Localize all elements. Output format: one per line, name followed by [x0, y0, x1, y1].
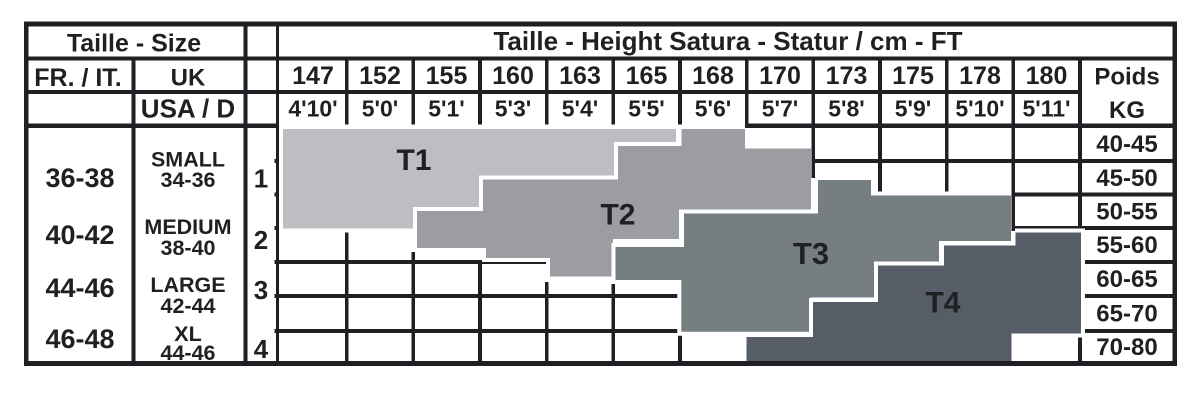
svg-text:5'4': 5'4' — [562, 96, 599, 122]
svg-text:UK: UK — [171, 65, 206, 92]
svg-text:42-44: 42-44 — [161, 294, 216, 318]
svg-text:5'1': 5'1' — [428, 96, 465, 122]
svg-text:T4: T4 — [925, 287, 960, 320]
svg-text:4: 4 — [254, 334, 269, 364]
svg-text:168: 168 — [692, 62, 734, 90]
svg-text:175: 175 — [892, 62, 934, 90]
svg-text:5'3': 5'3' — [495, 96, 532, 122]
svg-text:170: 170 — [759, 62, 801, 90]
svg-text:1: 1 — [254, 164, 268, 194]
svg-text:40-42: 40-42 — [45, 220, 114, 250]
svg-text:163: 163 — [559, 62, 601, 90]
svg-text:5'0': 5'0' — [362, 96, 399, 122]
svg-text:38-40: 38-40 — [161, 236, 216, 260]
svg-text:165: 165 — [626, 62, 668, 90]
svg-text:44-46: 44-46 — [45, 273, 114, 303]
svg-text:160: 160 — [492, 62, 534, 90]
svg-text:5'11': 5'11' — [1022, 96, 1070, 122]
svg-text:36-38: 36-38 — [45, 163, 114, 193]
svg-text:Taille - Height Satura - Statu: Taille - Height Satura - Statur / cm - F… — [493, 26, 962, 56]
svg-text:60-65: 60-65 — [1096, 266, 1157, 293]
svg-text:5'9': 5'9' — [895, 96, 932, 122]
svg-text:5'8': 5'8' — [828, 96, 865, 122]
svg-text:3: 3 — [254, 275, 268, 305]
svg-text:T2: T2 — [600, 199, 635, 232]
svg-text:50-55: 50-55 — [1096, 199, 1157, 226]
svg-text:173: 173 — [826, 62, 868, 90]
svg-text:178: 178 — [959, 62, 1001, 90]
svg-text:5'6': 5'6' — [695, 96, 732, 122]
svg-text:65-70: 65-70 — [1096, 301, 1157, 328]
svg-text:5'7': 5'7' — [762, 96, 799, 122]
svg-text:4'10': 4'10' — [288, 96, 337, 122]
svg-text:55-60: 55-60 — [1096, 232, 1157, 259]
svg-text:T3: T3 — [793, 236, 829, 271]
svg-text:Poids: Poids — [1094, 64, 1159, 91]
svg-text:46-48: 46-48 — [45, 324, 114, 354]
svg-text:USA / D: USA / D — [141, 94, 235, 124]
svg-text:152: 152 — [359, 62, 401, 90]
svg-text:45-50: 45-50 — [1096, 165, 1157, 192]
svg-text:180: 180 — [1026, 62, 1068, 90]
svg-text:44-46: 44-46 — [161, 341, 216, 365]
svg-text:40-45: 40-45 — [1096, 131, 1157, 158]
svg-text:5'10': 5'10' — [955, 96, 1004, 122]
svg-text:70-80: 70-80 — [1096, 334, 1157, 361]
svg-text:5'5': 5'5' — [628, 96, 665, 122]
svg-text:34-36: 34-36 — [161, 168, 216, 192]
svg-text:T1: T1 — [396, 144, 431, 177]
svg-text:Taille - Size: Taille - Size — [67, 30, 201, 58]
svg-text:KG: KG — [1109, 97, 1145, 124]
svg-text:2: 2 — [254, 225, 268, 255]
svg-text:FR. / IT.: FR. / IT. — [34, 64, 122, 92]
svg-text:147: 147 — [292, 62, 334, 90]
svg-text:155: 155 — [426, 62, 468, 90]
